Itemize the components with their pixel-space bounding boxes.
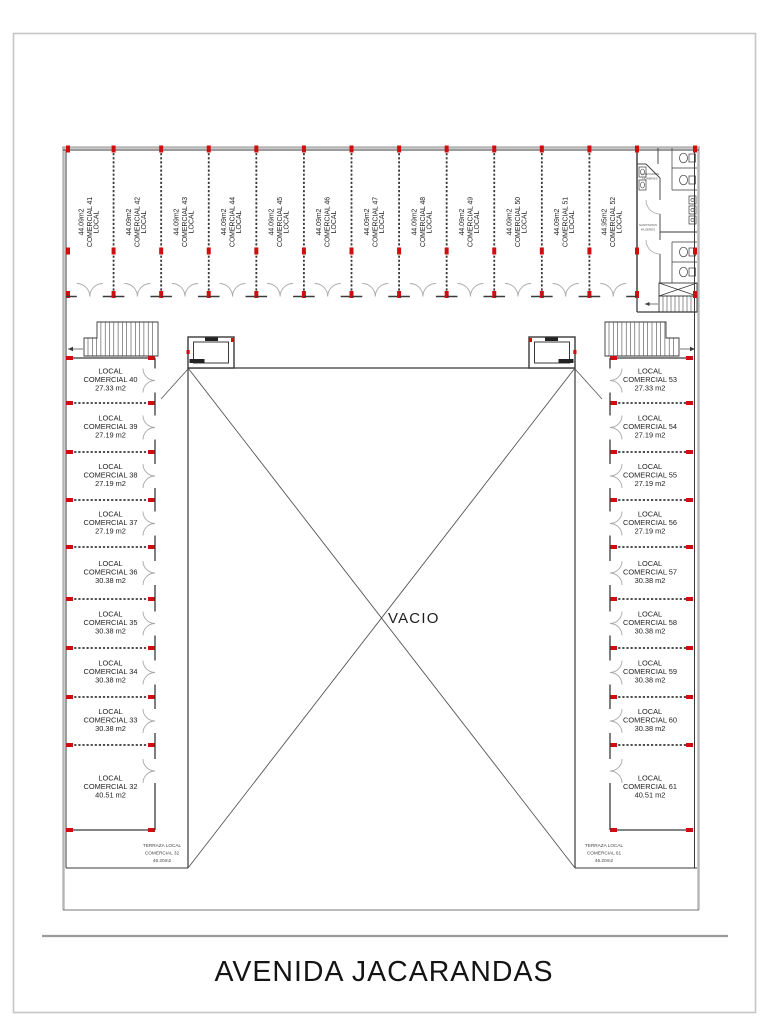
door-arc [137, 284, 150, 297]
door-arc [610, 673, 622, 685]
column-marker [693, 248, 697, 255]
column-marker [397, 146, 401, 153]
top-unit-label: LOCALCOMERCIAL 4144.09m2 [78, 197, 100, 247]
column-marker [148, 743, 155, 747]
column-marker [207, 248, 211, 255]
door-arc [553, 284, 566, 297]
unit-label-line: LOCAL [426, 211, 433, 234]
column-marker [66, 646, 73, 650]
unit-label-line: 30.38 m2 [95, 676, 126, 685]
elevator-right [529, 337, 577, 368]
door-arc [600, 284, 613, 297]
door-arc [610, 428, 622, 440]
door-arc [185, 284, 198, 297]
column-marker [148, 498, 155, 502]
door-arc [233, 284, 246, 297]
restroom-label: SANITARIOS [639, 223, 657, 227]
top-unit-label: LOCALCOMERCIAL 4744.09m2 [364, 197, 386, 247]
column-marker [148, 646, 155, 650]
column-marker [66, 828, 73, 832]
door-arc [610, 464, 622, 476]
column-marker [686, 498, 693, 502]
unit-label-line: 30.38 m2 [635, 676, 666, 685]
column-marker [686, 450, 693, 454]
column-marker [610, 695, 617, 699]
unit-label-line: 27.19 m2 [95, 479, 126, 488]
unit-label-line: LOCAL [522, 211, 529, 234]
door-arc [362, 284, 375, 297]
door-arc [143, 524, 155, 536]
unit-label-line: 30.38 m2 [95, 576, 126, 585]
door-arc [143, 428, 155, 440]
unit-label-line: 30.38 m2 [95, 627, 126, 636]
unit-label-line: 44.09m2 [554, 208, 561, 235]
column-marker [66, 401, 73, 405]
column-marker [492, 146, 496, 153]
svg-text:46.20m2: 46.20m2 [595, 858, 614, 863]
top-unit-label: LOCALCOMERCIAL 4544.09m2 [269, 197, 291, 247]
column-marker [686, 646, 693, 650]
floor-plan-page: VACIO [0, 0, 768, 1024]
column-marker [686, 695, 693, 699]
column-marker [148, 356, 155, 360]
column-marker [350, 146, 354, 153]
unit-label-line: COMERCIAL 44 [230, 197, 237, 247]
door-arc [610, 759, 622, 771]
unit-label-line: LOCAL [284, 211, 291, 234]
column-marker [302, 146, 306, 153]
outer-walls [62, 147, 700, 910]
unit-label-line: COMERCIAL 50 [515, 197, 522, 247]
unit-label-line: LOCAL [141, 211, 148, 234]
unit-label-line: 27.19 m2 [635, 431, 666, 440]
unit-label-line: COMERCIAL 46 [325, 197, 332, 247]
column-marker [254, 146, 258, 153]
door-arc [143, 612, 155, 624]
column-marker [207, 146, 211, 153]
staircase-left [68, 322, 158, 356]
unit-label-line: LOCAL [188, 211, 195, 234]
unit-label-line: 40.51 m2 [635, 791, 666, 800]
unit-label-line: COMERCIAL 45 [277, 197, 284, 247]
column-marker [148, 828, 155, 832]
unit-label-line: LOCAL [474, 211, 481, 234]
column-marker [587, 146, 591, 153]
right-commercial-wing: LOCALCOMERCIAL 5327.33 m2LOCALCOMERCIAL … [610, 356, 693, 832]
top-unit-label: LOCALCOMERCIAL 4944.09m2 [459, 197, 481, 247]
column-marker [587, 248, 591, 255]
column-marker [635, 146, 639, 153]
terrace-right-label: TERRAZA LOCAL COMERCIAL 61 46.20m2 [585, 843, 624, 863]
unit-label-line: 44.09m2 [269, 208, 276, 235]
door-arc [143, 464, 155, 476]
terrace-left-label: TERRAZA LOCAL COMERCIAL 32 46.20m2 [143, 843, 182, 863]
column-marker [610, 498, 617, 502]
unit-label-line: 44.09m2 [316, 208, 323, 235]
door-arc [267, 284, 280, 297]
column-marker [540, 146, 544, 153]
column-marker [540, 248, 544, 255]
svg-text:TERRAZA LOCAL: TERRAZA LOCAL [585, 843, 624, 848]
column-marker [148, 545, 155, 549]
column-marker [492, 248, 496, 255]
column-marker [159, 146, 163, 153]
column-marker [66, 146, 70, 153]
door-arc [610, 369, 622, 381]
column-marker [445, 248, 449, 255]
column-marker [610, 401, 617, 405]
door-arc [280, 284, 293, 297]
door-arc [172, 284, 185, 297]
door-arc [610, 721, 622, 733]
column-marker [302, 248, 306, 255]
unit-label-line: COMERCIAL 51 [563, 197, 570, 247]
unit-label-line: COMERCIAL 43 [182, 197, 189, 247]
door-arc [610, 381, 622, 393]
column-marker [254, 248, 258, 255]
door-arc [610, 612, 622, 624]
top-commercial-band: LOCALCOMERCIAL 4144.09m2LOCALCOMERCIAL 4… [66, 146, 697, 299]
column-marker [350, 248, 354, 255]
door-arc [328, 284, 341, 297]
unit-label-line: 27.19 m2 [635, 479, 666, 488]
top-unit-label: LOCALCOMERCIAL 4444.09m2 [221, 197, 243, 247]
street-name-title: AVENIDA JACARANDAS [215, 956, 554, 988]
column-marker [686, 743, 693, 747]
column-marker [686, 828, 693, 832]
door-arc [566, 284, 579, 297]
top-unit-label: LOCALCOMERCIAL 4644.09m2 [316, 197, 338, 247]
column-marker [686, 356, 693, 360]
restroom-label: MUJERES [641, 228, 655, 232]
door-arc [610, 561, 622, 573]
unit-label-line: 44.09m2 [507, 208, 514, 235]
door-arc [90, 284, 103, 297]
unit-label-line: COMERCIAL 42 [134, 197, 141, 247]
top-unit-label: LOCALCOMERCIAL 5144.09m2 [554, 197, 576, 247]
door-arc [610, 512, 622, 524]
door-arc [143, 673, 155, 685]
svg-text:46.20m2: 46.20m2 [153, 858, 172, 863]
column-marker [686, 401, 693, 405]
restroom-label: HOMBRES [642, 177, 657, 181]
elevator-left [187, 337, 235, 368]
toilet-icon [680, 153, 696, 163]
unit-label-line: 30.38 m2 [635, 627, 666, 636]
door-arc [315, 284, 328, 297]
door-arc [423, 284, 436, 297]
door-arc [143, 476, 155, 488]
svg-text:COMERCIAL 32: COMERCIAL 32 [145, 851, 180, 856]
unit-label-line: LOCAL [93, 211, 100, 234]
column-marker [610, 743, 617, 747]
unit-label-line: 44.09m2 [221, 208, 228, 235]
door-arc [457, 284, 470, 297]
door-arc [143, 512, 155, 524]
column-marker [66, 695, 73, 699]
door-arc [610, 624, 622, 636]
top-unit-label: LOCALCOMERCIAL 4344.09m2 [173, 197, 195, 247]
unit-label-line: 40.51 m2 [95, 791, 126, 800]
column-marker [693, 291, 697, 298]
stair-direction-arrow [68, 347, 73, 351]
column-marker [610, 450, 617, 454]
door-arc [610, 709, 622, 721]
door-arc [375, 284, 388, 297]
column-marker [610, 597, 617, 601]
column-marker [148, 450, 155, 454]
column-marker [148, 695, 155, 699]
door-arc [610, 476, 622, 488]
column-marker [112, 146, 116, 153]
door-arc [220, 284, 233, 297]
unit-label-line: 27.33 m2 [635, 384, 666, 393]
unit-label-line: 44.09m2 [126, 208, 133, 235]
unit-label-line: 30.38 m2 [635, 576, 666, 585]
door-arc [505, 284, 518, 297]
door-arc [646, 200, 660, 214]
column-marker [686, 597, 693, 601]
staircase-right [605, 322, 695, 356]
door-arc [77, 284, 90, 297]
door-arc [143, 709, 155, 721]
column-marker [397, 248, 401, 255]
unit-label-line: LOCAL [236, 211, 243, 234]
svg-text:TERRAZA LOCAL: TERRAZA LOCAL [143, 843, 182, 848]
door-arc [610, 416, 622, 428]
column-marker [66, 743, 73, 747]
unit-label-line: COMERCIAL 52 [610, 197, 617, 247]
column-marker [693, 146, 697, 153]
void-area: VACIO [66, 368, 697, 868]
urinal-icon [639, 180, 646, 190]
door-arc [143, 759, 155, 771]
column-marker [66, 248, 70, 255]
column-marker [112, 248, 116, 255]
restroom-stair [645, 296, 697, 312]
restroom-block: SANITARIOS HOMBRES SANITARIOS MUJERES [637, 148, 697, 312]
column-marker [635, 248, 639, 255]
column-marker [66, 498, 73, 502]
column-marker [686, 545, 693, 549]
unit-label-line: 44.09m2 [173, 208, 180, 235]
column-marker [66, 356, 73, 360]
column-marker [66, 450, 73, 454]
floor-plan-drawing: VACIO [0, 0, 768, 1024]
door-arc [646, 240, 660, 254]
column-marker [445, 146, 449, 153]
column-marker [610, 646, 617, 650]
door-arc [610, 661, 622, 673]
unit-label-line: 44.09m2 [364, 208, 371, 235]
unit-label-line: COMERCIAL 47 [372, 197, 379, 247]
unit-label-line: 30.38 m2 [635, 724, 666, 733]
unit-label-line: LOCAL [331, 211, 338, 234]
column-marker [159, 248, 163, 255]
unit-label-line: 27.19 m2 [635, 527, 666, 536]
door-arc [143, 661, 155, 673]
unit-label-line: 44.09m2 [459, 208, 466, 235]
unit-label-line: 27.19 m2 [95, 431, 126, 440]
door-arc [143, 561, 155, 573]
void-label: VACIO [388, 610, 440, 627]
column-marker [610, 545, 617, 549]
column-marker [148, 597, 155, 601]
toilet-icon [680, 175, 696, 185]
unit-label-line: 27.19 m2 [95, 527, 126, 536]
door-arc [613, 284, 626, 297]
door-arc [143, 369, 155, 381]
door-arc [143, 624, 155, 636]
unit-label-line: COMERCIAL 49 [467, 197, 474, 247]
door-arc [143, 573, 155, 585]
unit-label-line: 27.33 m2 [95, 384, 126, 393]
door-arc [143, 721, 155, 733]
toilet-icon [680, 267, 696, 277]
unit-label-line: COMERCIAL 48 [420, 197, 427, 247]
door-arc [124, 284, 137, 297]
top-unit-label: LOCALCOMERCIAL 5044.09m2 [507, 197, 529, 247]
unit-label-line: 44.09m2 [78, 208, 85, 235]
restroom-label: SANITARIOS [641, 172, 659, 176]
door-arc [610, 771, 622, 783]
door-arc [410, 284, 423, 297]
column-marker [610, 828, 617, 832]
unit-label-line: LOCAL [617, 211, 624, 234]
door-arc [143, 416, 155, 428]
column-marker [610, 356, 617, 360]
unit-label-line: LOCAL [379, 211, 386, 234]
svg-text:COMERCIAL 61: COMERCIAL 61 [587, 851, 622, 856]
unit-label-line: LOCAL [569, 211, 576, 234]
unit-label-line: 44.09m2 [411, 208, 418, 235]
left-commercial-wing: LOCALCOMERCIAL 4027.33 m2LOCALCOMERCIAL … [66, 356, 155, 832]
door-arc [143, 381, 155, 393]
door-arc [610, 524, 622, 536]
door-arc [470, 284, 483, 297]
top-unit-label: LOCALCOMERCIAL 4244.09m2 [126, 197, 148, 247]
column-marker [66, 545, 73, 549]
top-unit-label: LOCALCOMERCIAL 5244.95m2 [602, 197, 624, 247]
column-marker [148, 401, 155, 405]
top-unit-label: LOCALCOMERCIAL 4844.09m2 [411, 197, 433, 247]
unit-label-line: COMERCIAL 41 [87, 197, 94, 247]
unit-label-line: 30.38 m2 [95, 724, 126, 733]
door-arc [143, 771, 155, 783]
door-arc [518, 284, 531, 297]
unit-label-line: 44.95m2 [602, 208, 609, 235]
column-marker [66, 597, 73, 601]
door-arc [610, 573, 622, 585]
